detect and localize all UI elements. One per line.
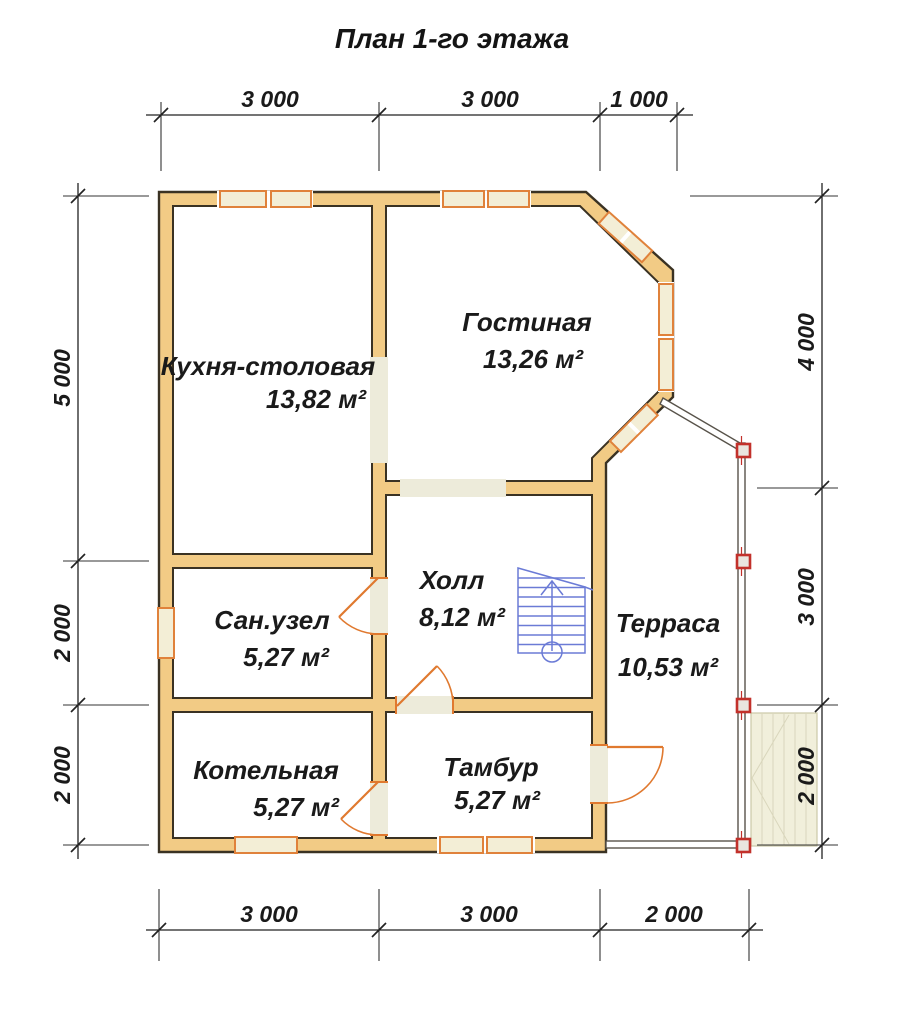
- dim-right-2: 3 000: [793, 568, 819, 626]
- room-label-hall: Холл: [418, 565, 485, 595]
- dim-bottom-2: 3 000: [460, 901, 518, 927]
- dimension-top: 3 000 3 000 1 000: [146, 86, 693, 171]
- dim-right-1: 4 000: [793, 313, 819, 372]
- room-area-vestibule: 5,27 м²: [454, 785, 541, 815]
- floor-plan-drawing: План 1-го этажа: [0, 0, 900, 1010]
- room-area-living: 13,26 м²: [483, 344, 585, 374]
- room-area-bathroom: 5,27 м²: [243, 642, 330, 672]
- room-label-vestibule: Тамбур: [443, 752, 538, 782]
- room-label-boiler: Котельная: [193, 755, 339, 785]
- room-area-terrace: 10,53 м²: [618, 652, 720, 682]
- room-area-hall: 8,12 м²: [419, 602, 506, 632]
- room-area-boiler: 5,27 м²: [253, 792, 340, 822]
- dim-top-1: 3 000: [241, 86, 299, 112]
- room-area-kitchen: 13,82 м²: [266, 384, 368, 414]
- dim-bottom-3: 2 000: [644, 901, 703, 927]
- dim-top-2: 3 000: [461, 86, 519, 112]
- dim-right-3: 2 000: [793, 747, 819, 806]
- floor-plan-page: План 1-го этажа: [0, 0, 900, 1010]
- dim-bottom-1: 3 000: [240, 901, 298, 927]
- room-label-terrace: Терраса: [616, 608, 721, 638]
- dim-top-3: 1 000: [610, 86, 668, 112]
- door-vestibule-terrace: [607, 747, 663, 803]
- room-label-living: Гостиная: [462, 307, 591, 337]
- dim-left-2: 2 000: [49, 604, 75, 663]
- dim-left-3: 2 000: [49, 746, 75, 805]
- dimension-left: 5 000 2 000 2 000: [49, 183, 149, 859]
- page-title: План 1-го этажа: [335, 23, 569, 54]
- dimension-bottom: 3 000 3 000 2 000: [146, 889, 763, 961]
- dim-left-1: 5 000: [49, 349, 75, 407]
- room-label-bathroom: Сан.узел: [214, 605, 329, 635]
- room-label-kitchen: Кухня-столовая: [161, 351, 376, 381]
